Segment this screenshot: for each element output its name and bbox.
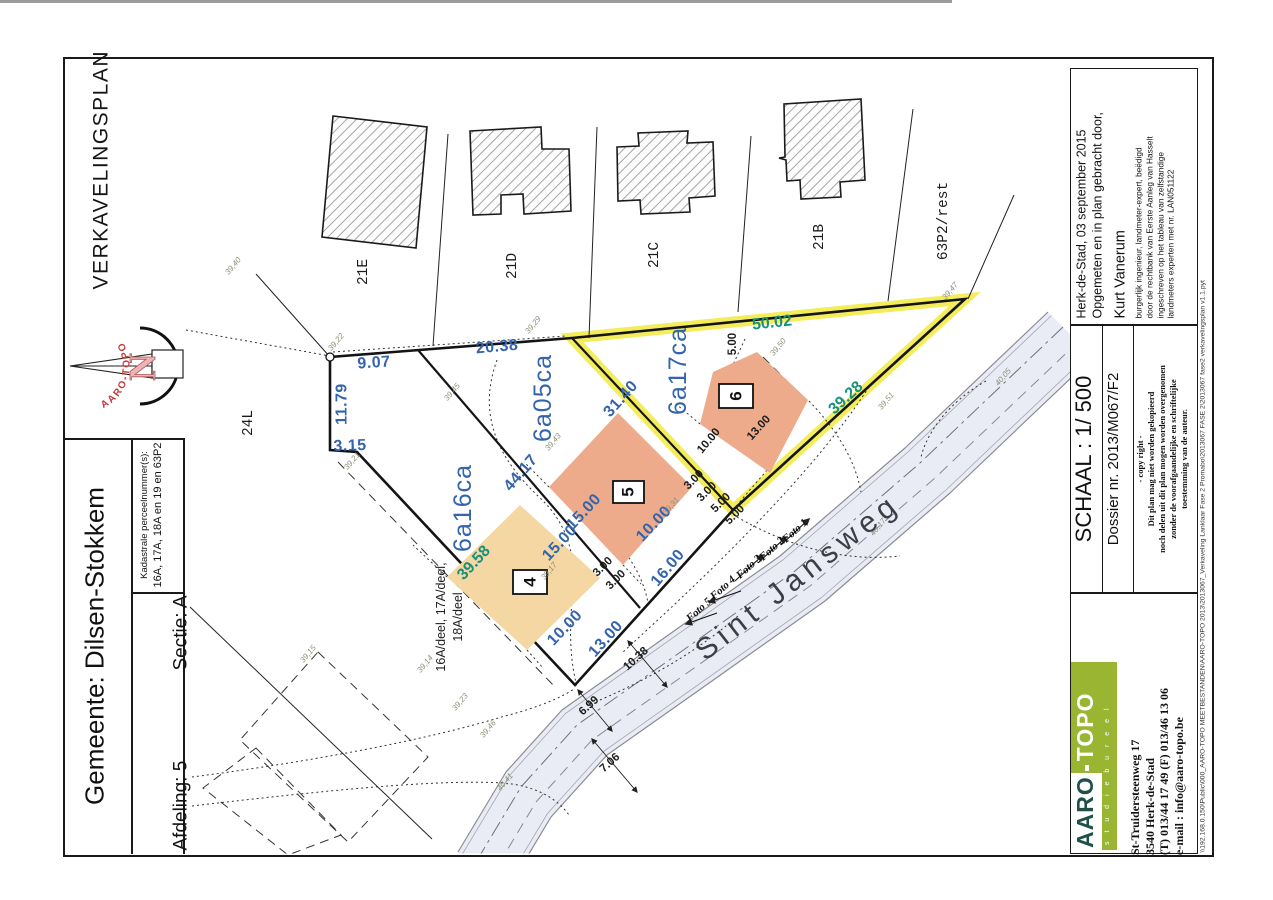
place-date: Herk-de-Stad, 03 september 2015 [1074, 75, 1090, 318]
afdeling-label: Afdeling: 5 [170, 761, 196, 851]
sectie-label: Sectie: A [170, 596, 196, 671]
surveyor-credential: door de rechtbank van Eerste Aanleg van … [1144, 75, 1155, 318]
dossier-number: Dossier nr. 2013/M067/F2 [1105, 329, 1131, 589]
address-line: e-mail : info@aaro-topo.be [1172, 659, 1187, 855]
page-border [63, 57, 1214, 857]
surveyor-credential: burgerlijk ingenieur, landmeter-expert, … [1133, 75, 1144, 318]
source-file-path: \\192.168.0.150\Public\000_AARO-TOPO MEE… [1200, 62, 1211, 852]
logo-subtitle: s t u d i e b u r e e l [1102, 662, 1117, 850]
surveyor-block: Herk-de-Stad, 03 september 2015 Opgemete… [1074, 75, 1190, 318]
surveyor-credential: ingeschreven op het tableau van zelfstan… [1155, 75, 1166, 318]
logo-hyphen [1071, 763, 1102, 773]
surveyor-intro: Opgemeten en in plan gebracht door, [1090, 75, 1106, 318]
address-line: St-Truidersteenweg 17 [1128, 659, 1143, 855]
titleblock-line [63, 438, 184, 440]
address-line: (T) 013/44 17 49 (F) 013/46 13 06 [1157, 659, 1172, 855]
kadastrale-cell: Kadastrale perceelnummer(s): 16A, 17A, 1… [139, 441, 175, 589]
titleblock-line [131, 438, 133, 854]
kadastrale-label: Kadastrale perceelnummer(s): [139, 441, 151, 589]
aaro-topo-logo: AARO TOPO s t u d i e b u r e e l [1071, 662, 1117, 850]
logo-topo: TOPO [1071, 662, 1102, 763]
copyright-line: Dit plan mag niet worden gekopieerd [1146, 328, 1157, 590]
surveyor-credential: landmeters experten met nr. LAN051122 [1165, 75, 1176, 318]
surveyor-name: Kurt Vanerum [1112, 75, 1129, 318]
copyright-line: toestemming van de auteur. [1179, 328, 1190, 590]
schaal-label: SCHAAL : 1/ 500 [1071, 329, 1101, 589]
copyright-line: zonder de voorafgaandelijke en schriftel… [1168, 328, 1179, 590]
firm-address-block: St-Truidersteenweg 17 3540 Herk-de-Stad … [1128, 659, 1188, 855]
gemeente-label: Gemeente: Dilsen-Stokkem [79, 444, 115, 849]
afdeling-sectie-cell: Afdeling: 5 Sectie: A [170, 570, 196, 877]
kadastrale-value: 16A, 17A, 18A en 19 en 63P2 [151, 441, 165, 589]
copyright-line: noch delen uit dit plan mogen worden ove… [1157, 328, 1168, 590]
scanned-verkavelingsplan-page: 9.0720.3811.793.1531.4044.1715.0010.0015… [0, 0, 1273, 900]
copyright-block: - copy right - Dit plan mag niet worden … [1135, 328, 1195, 590]
address-line: 3540 Herk-de-Stad [1143, 659, 1158, 855]
scale-box-divider [1102, 325, 1103, 593]
plan-type-title: VERKAVELINGSPLAN [89, 55, 117, 290]
logo-aaro: AARO [1071, 773, 1102, 850]
copyright-line: - copy right - [1135, 328, 1146, 590]
